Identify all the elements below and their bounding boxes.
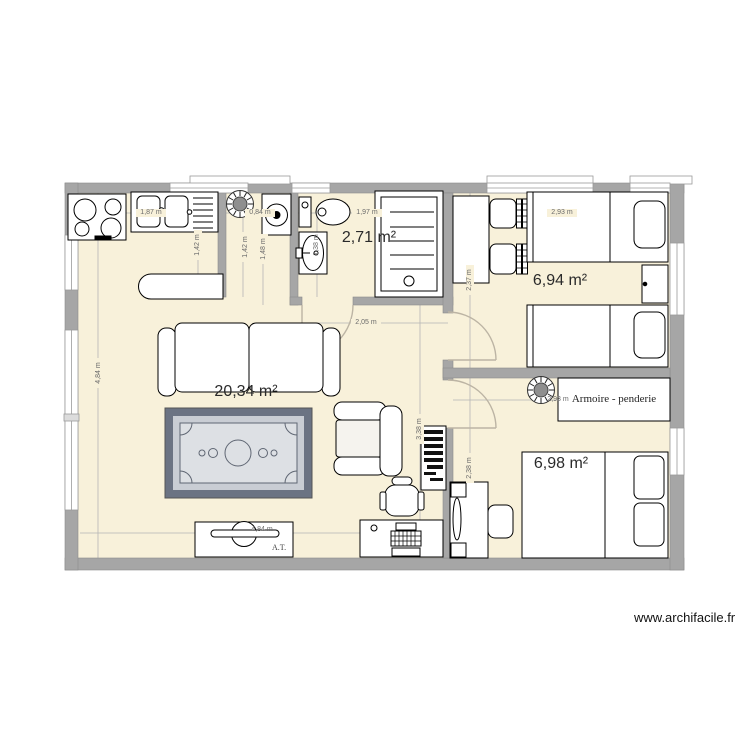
wall-bathroom-bottom-b[interactable] — [353, 297, 453, 305]
computer-desk-icon[interactable] — [360, 520, 443, 557]
bedroom1-area-label: 6,94 m² — [525, 272, 595, 290]
bedroom2-area-label: 6,98 m² — [526, 455, 596, 473]
bathroom-area-label: 2,71 m² — [334, 229, 404, 247]
living-area-label: 20,34 m² — [206, 383, 286, 401]
dim-hall-width: 2,05 m — [351, 319, 381, 327]
wardrobe-label: Armoire - penderie — [560, 393, 668, 405]
pool-table-icon[interactable] — [165, 408, 312, 498]
bathroom-sink-icon[interactable] — [296, 232, 327, 274]
wall-center-a[interactable] — [443, 193, 453, 313]
wall-bathroom-bottom-a[interactable] — [290, 297, 302, 305]
dim-laundry-width: 0,84 m — [245, 209, 275, 217]
dim-bedroom1-depth: 2,37 m — [466, 265, 474, 295]
dim-entry-depth-outer: 1,48 m — [260, 234, 268, 264]
wall-bottom[interactable] — [65, 558, 684, 570]
bedroom1-chair1-icon[interactable] — [490, 199, 528, 228]
wall-right[interactable] — [670, 183, 684, 570]
single-bed1-icon[interactable] — [527, 192, 668, 262]
dim-bathroom-width: 1,97 m — [352, 209, 382, 217]
nightstand-icon[interactable] — [642, 265, 668, 303]
floor-plan-canvas: 1,87 m 0,84 m 1,97 m 2,93 m 1,42 m 1,42 … — [0, 0, 750, 750]
dim-bathroom-depth: 1,38 m — [313, 230, 321, 260]
counter-bar-icon[interactable] — [139, 274, 224, 299]
bedroom1-chair2-icon[interactable] — [490, 244, 528, 274]
bedroom2-chair-icon[interactable] — [488, 505, 513, 538]
bookshelf-icon[interactable] — [421, 426, 446, 490]
dim-kitchen-depth: 1,42 m — [194, 230, 202, 260]
toilet-icon[interactable] — [299, 197, 350, 227]
dim-living-lower-depth: 3,38 m — [416, 414, 424, 444]
stove-icon[interactable] — [68, 194, 126, 240]
bedroom2-desk-icon[interactable] — [450, 482, 488, 558]
dim-kitchen-width: 1,87 m — [136, 209, 166, 217]
dim-bedroom2-depth: 2,38 m — [466, 453, 474, 483]
wall-bedroom-divider[interactable] — [443, 368, 670, 378]
tv-unit-label: A.T. — [272, 543, 286, 552]
dim-bedroom1-width: 2,93 m — [547, 209, 577, 217]
armchair-icon[interactable] — [334, 402, 402, 476]
dim-living-depth: 4,84 m — [95, 358, 103, 388]
archifacile-watermark: www.archifacile.fr — [634, 610, 735, 625]
window-left-divider — [64, 414, 79, 421]
single-bed2-icon[interactable] — [527, 305, 668, 367]
dim-entry-depth: 1,42 m — [242, 232, 250, 262]
dim-living-width: 4,84 m — [247, 526, 277, 534]
